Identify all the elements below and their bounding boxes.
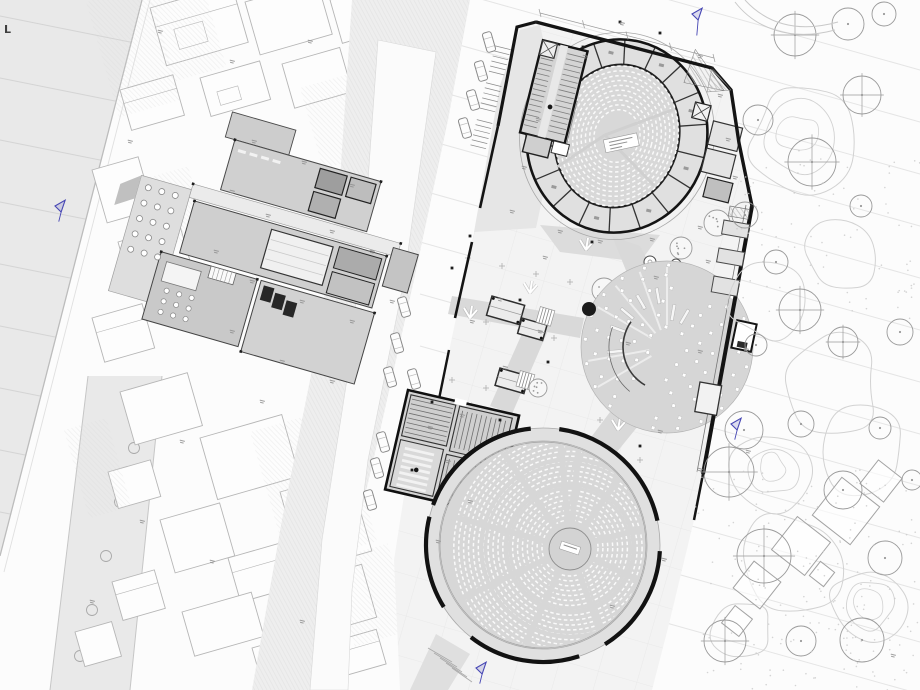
plaza-dot (582, 302, 596, 316)
site-plan-canvas: L (0, 0, 920, 690)
site-plan-drawing: L (0, 0, 920, 690)
corner-label: L (4, 23, 11, 36)
plan-render-root (0, 0, 920, 690)
